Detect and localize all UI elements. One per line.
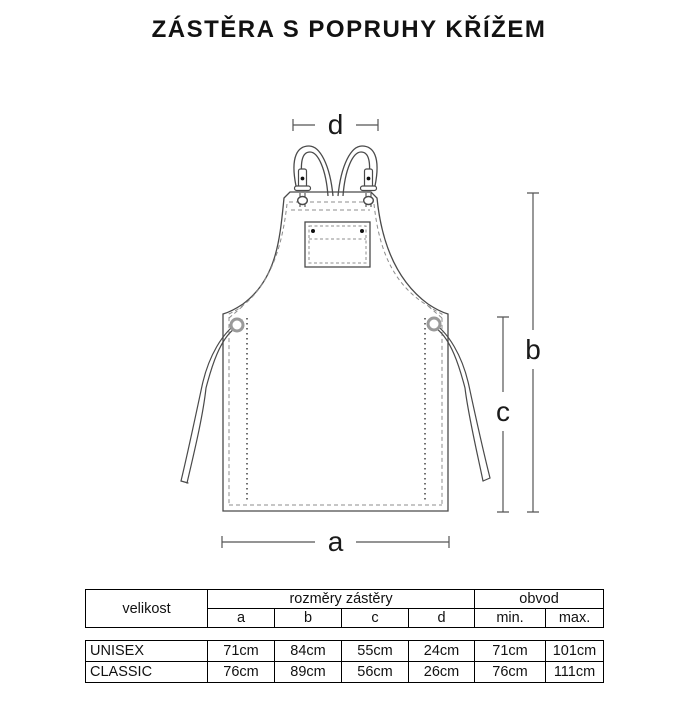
chest-pocket	[305, 222, 370, 267]
size-name-unisex: UNISEX	[86, 641, 208, 662]
pocket-rivet-right	[360, 229, 364, 233]
header-col-c: c	[342, 609, 409, 628]
header-col-min: min.	[475, 609, 546, 628]
page: ZÁSTĚRA S POPRUHY KŘÍŽEM	[0, 0, 698, 717]
unisex-d: 24cm	[409, 641, 475, 662]
size-table-header: velikost rozměry zástěry obvod a b c d m…	[85, 589, 604, 628]
dimension-label-d: d	[328, 109, 344, 140]
grommet-left	[231, 319, 243, 331]
header-col-a: a	[208, 609, 275, 628]
strap-ring-right	[364, 197, 374, 205]
strap-ring-left	[298, 197, 308, 205]
strap-rivet-right	[367, 177, 371, 181]
header-col-b: b	[275, 609, 342, 628]
classic-max: 111cm	[546, 662, 604, 683]
dimension-label-c: c	[496, 396, 510, 427]
classic-a: 76cm	[208, 662, 275, 683]
grommet-right	[428, 318, 440, 330]
apron-diagram: d a b c	[0, 0, 698, 580]
table-row-classic: CLASSIC 76cm 89cm 56cm 26cm 76cm 111cm	[86, 662, 604, 683]
unisex-min: 71cm	[475, 641, 546, 662]
header-obvod: obvod	[475, 590, 604, 609]
unisex-max: 101cm	[546, 641, 604, 662]
table-row-unisex: UNISEX 71cm 84cm 55cm 24cm 71cm 101cm	[86, 641, 604, 662]
classic-b: 89cm	[275, 662, 342, 683]
classic-c: 56cm	[342, 662, 409, 683]
unisex-a: 71cm	[208, 641, 275, 662]
header-col-max: max.	[546, 609, 604, 628]
classic-d: 26cm	[409, 662, 475, 683]
classic-min: 76cm	[475, 662, 546, 683]
dimension-label-a: a	[328, 526, 344, 557]
header-velikost: velikost	[86, 590, 208, 628]
header-rozmery: rozměry zástěry	[208, 590, 475, 609]
size-table-data: UNISEX 71cm 84cm 55cm 24cm 71cm 101cm CL…	[85, 640, 604, 683]
strap-rivet-left	[301, 177, 305, 181]
pocket-rivet-left	[311, 229, 315, 233]
unisex-c: 55cm	[342, 641, 409, 662]
header-col-d: d	[409, 609, 475, 628]
size-name-classic: CLASSIC	[86, 662, 208, 683]
dimension-label-b: b	[525, 334, 541, 365]
unisex-b: 84cm	[275, 641, 342, 662]
